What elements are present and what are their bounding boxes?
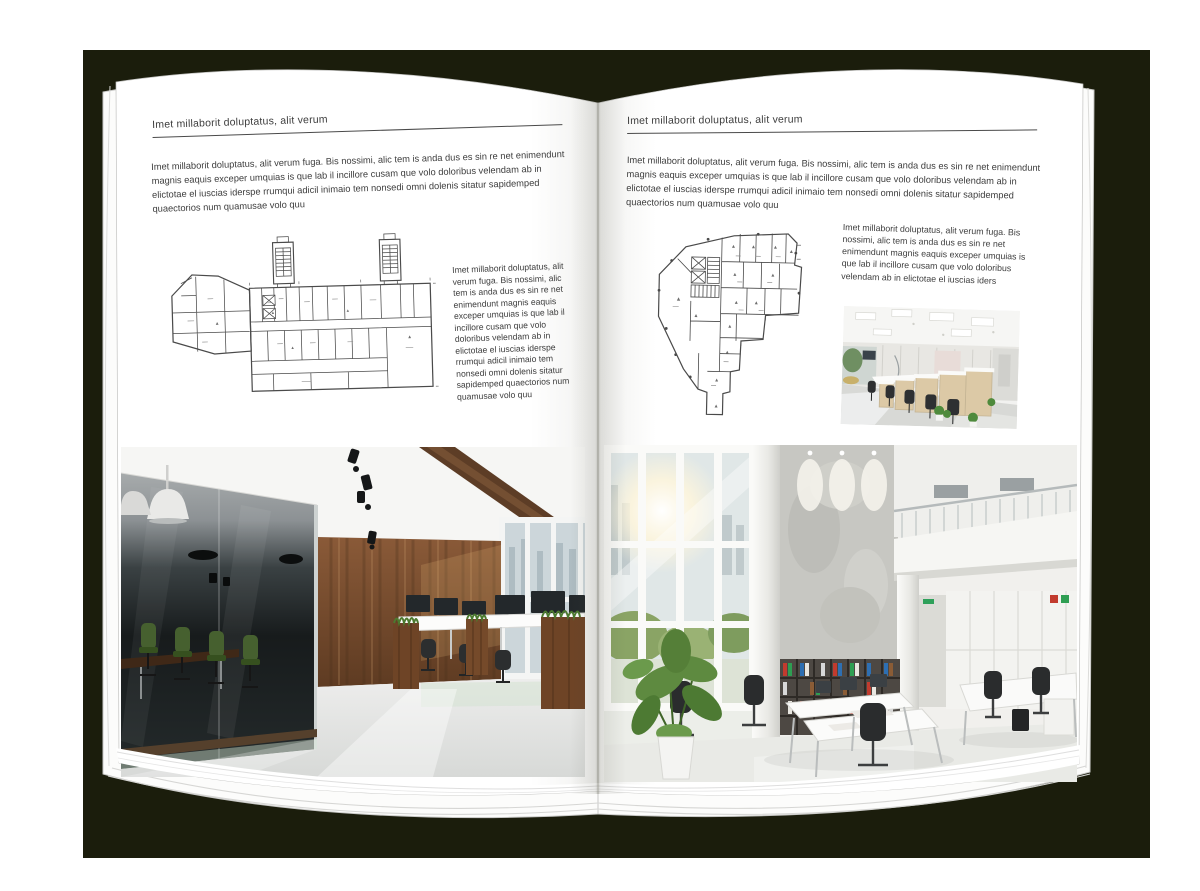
floor-plan-left	[150, 225, 450, 411]
office-photo-small	[841, 306, 1020, 429]
right-caption-column: Imet millaborit doluptatus, alit verum f…	[841, 221, 1031, 288]
right-intro-paragraph: Imet millaborit doluptatus, alit verum f…	[626, 154, 1047, 218]
mezzanine	[894, 445, 1077, 581]
stair-tower-icon	[272, 234, 401, 288]
floor-plan-right	[643, 220, 810, 423]
plan-dimension-marks	[671, 255, 781, 387]
column	[752, 445, 780, 767]
glass-meeting-room	[121, 465, 318, 769]
office-photo-right	[604, 445, 1077, 782]
exit-sign	[923, 599, 934, 604]
magazine-spread-mockup: Imet millaborit doluptatus, alit verum I…	[0, 0, 1200, 891]
left-caption-column: Imet millaborit doluptatus, alit verum f…	[452, 261, 571, 403]
fire-sign	[1050, 595, 1058, 603]
office-photo-left	[121, 447, 585, 777]
first-aid-sign	[1061, 595, 1069, 603]
downlight-glow	[797, 459, 887, 511]
concrete-wall	[780, 445, 898, 661]
waste-bin	[1012, 709, 1029, 731]
right-page-title: Imet millaborit doluptatus, alit verum	[627, 111, 1037, 127]
right-page-header: Imet millaborit doluptatus, alit verum	[627, 111, 1037, 134]
